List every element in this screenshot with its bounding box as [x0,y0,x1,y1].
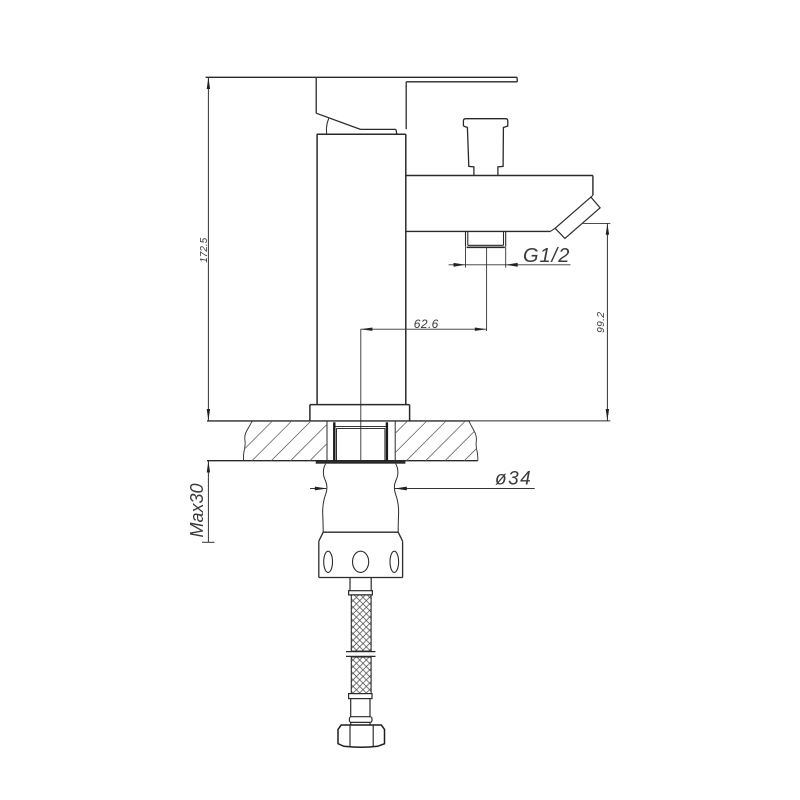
svg-text:172.5: 172.5 [199,237,210,262]
svg-text:62.6: 62.6 [414,317,439,331]
svg-text:Max30: Max30 [187,483,207,537]
svg-text:ø34: ø34 [495,469,532,490]
svg-text:99.2: 99.2 [595,312,607,333]
svg-text:G1/2: G1/2 [523,245,570,267]
